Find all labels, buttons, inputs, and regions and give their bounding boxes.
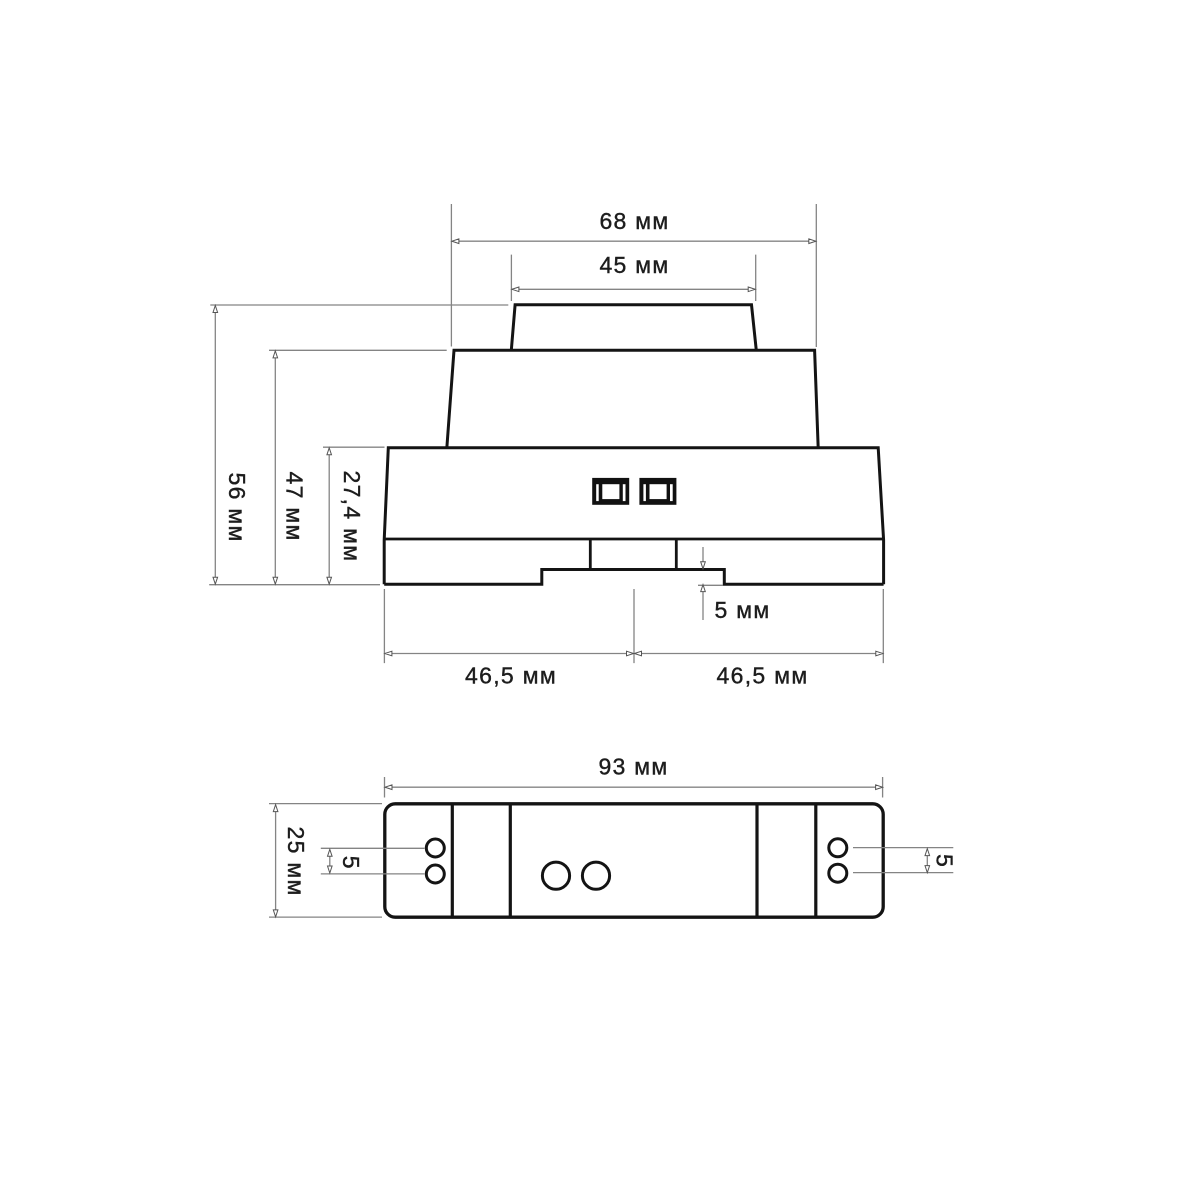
svg-text:5: 5: [932, 854, 958, 868]
svg-text:5 мм: 5 мм: [715, 597, 771, 623]
svg-text:46,5 мм: 46,5 мм: [717, 662, 809, 688]
svg-text:27,4 мм: 27,4 мм: [339, 471, 365, 563]
svg-text:45 мм: 45 мм: [599, 252, 669, 278]
svg-text:93 мм: 93 мм: [598, 753, 668, 779]
svg-text:5: 5: [338, 856, 364, 870]
svg-text:56 мм: 56 мм: [224, 473, 250, 543]
svg-text:68 мм: 68 мм: [599, 208, 669, 234]
svg-text:46,5 мм: 46,5 мм: [465, 662, 557, 688]
svg-text:25 мм: 25 мм: [283, 827, 309, 897]
svg-text:47 мм: 47 мм: [282, 472, 308, 542]
